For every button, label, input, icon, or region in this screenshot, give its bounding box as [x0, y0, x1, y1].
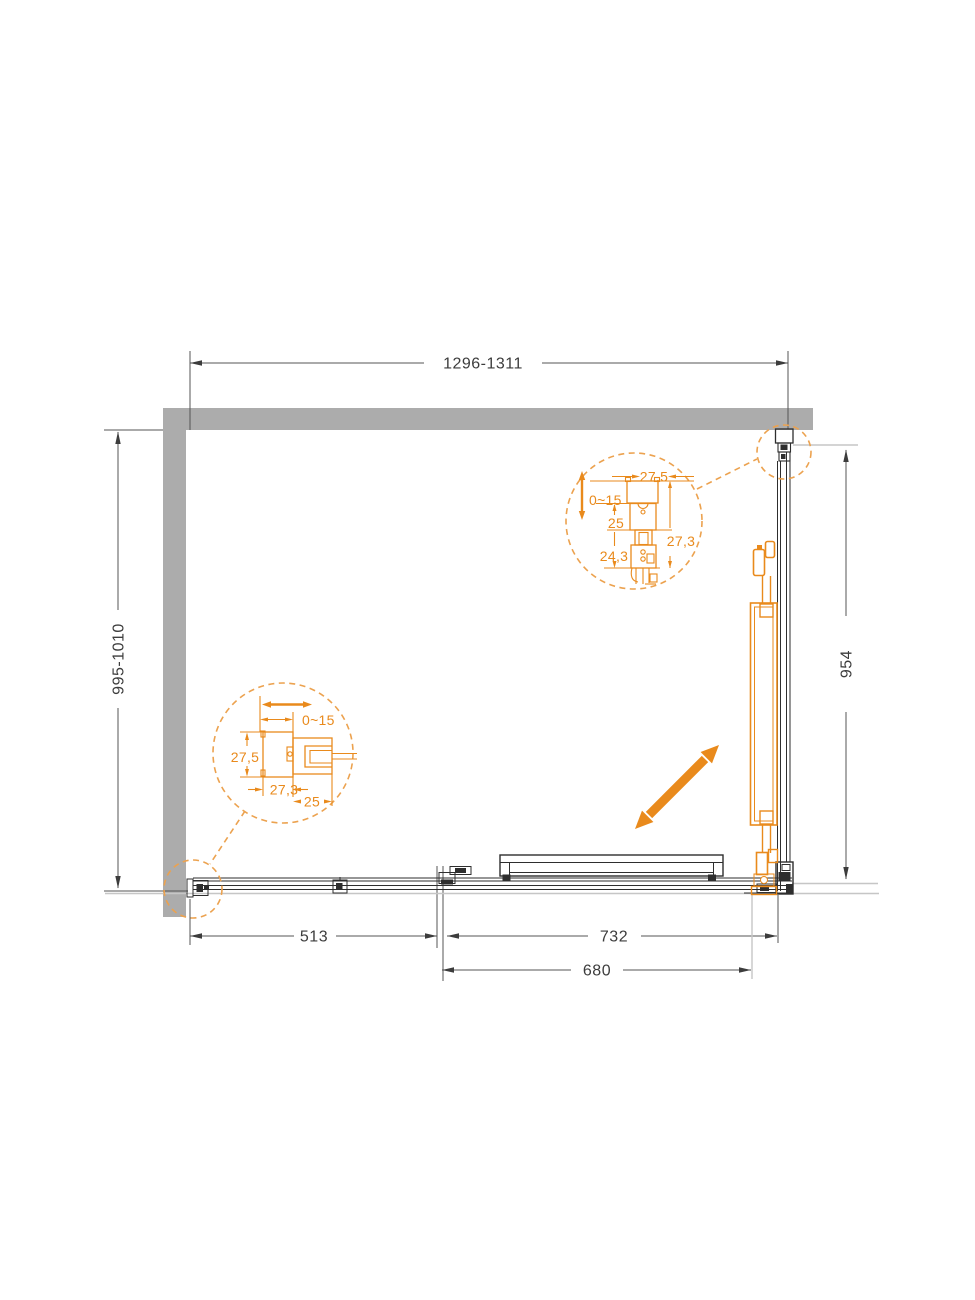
dim-opening-outer-label: 732	[600, 929, 628, 946]
leader-line	[210, 811, 245, 864]
orange-door-panel	[751, 542, 778, 895]
detail-bl-width-label: 27,5	[231, 749, 259, 765]
profile-section-vertical	[626, 478, 660, 585]
arrowhead-right-icon	[765, 933, 777, 938]
door-handle	[754, 542, 775, 576]
arrowhead-left-icon	[190, 360, 202, 365]
detail-bl-a-label: 27,3	[270, 782, 298, 798]
arrowhead-left-icon	[442, 967, 454, 972]
door-direction-arrow-icon	[635, 745, 719, 829]
drawing-canvas: 1296-1311 995-1010 954 513	[0, 0, 975, 1300]
arrowhead-down-icon	[843, 867, 848, 880]
side-fixed-glass	[778, 452, 791, 891]
sliding-door-panel	[500, 855, 723, 881]
walls	[163, 408, 813, 917]
detail-bl-travel-label: 0~15	[302, 712, 335, 728]
dimension-opening: 680	[442, 895, 752, 980]
dim-opening-label: 680	[583, 963, 611, 980]
dim-width-label: 1296-1311	[443, 356, 523, 373]
arrowhead-up-icon	[843, 450, 848, 463]
dim-fixed-panel-label: 513	[300, 929, 328, 946]
dim-depth-label: 995-1010	[111, 623, 128, 695]
detail-tr-c-label: 27,3	[667, 533, 695, 549]
top-wall	[163, 408, 813, 430]
arrowhead-left-icon	[447, 933, 459, 938]
door-guide-bracket	[439, 867, 471, 885]
shower-enclosure-plan-drawing: 1296-1311 995-1010 954 513	[0, 0, 975, 1300]
profile-section-horizontal	[261, 731, 357, 777]
wall-profile-bottom-left	[187, 879, 209, 897]
detail-callout-top-right: 0~15 27,5 25 24,3 27,3	[566, 425, 811, 589]
arrowhead-right-icon	[739, 967, 751, 972]
arrowhead-left-icon	[190, 933, 202, 938]
detail-bl-b-label: 25	[304, 794, 320, 810]
arrowhead-down-icon	[115, 876, 120, 889]
arrowhead-right-icon	[425, 933, 437, 938]
leader-line	[697, 459, 757, 489]
detail-tr-travel-label: 0~15	[589, 492, 622, 508]
detail-tr-b-label: 24,3	[600, 548, 628, 564]
detail-tr-a-label: 25	[608, 515, 624, 531]
arrowhead-right-icon	[776, 360, 788, 365]
dim-side-label: 954	[839, 650, 856, 678]
detail-tr-width-label: 27,5	[640, 469, 668, 485]
left-wall	[163, 408, 186, 917]
dimension-side: 954	[792, 445, 878, 884]
arrowhead-up-icon	[115, 432, 120, 445]
